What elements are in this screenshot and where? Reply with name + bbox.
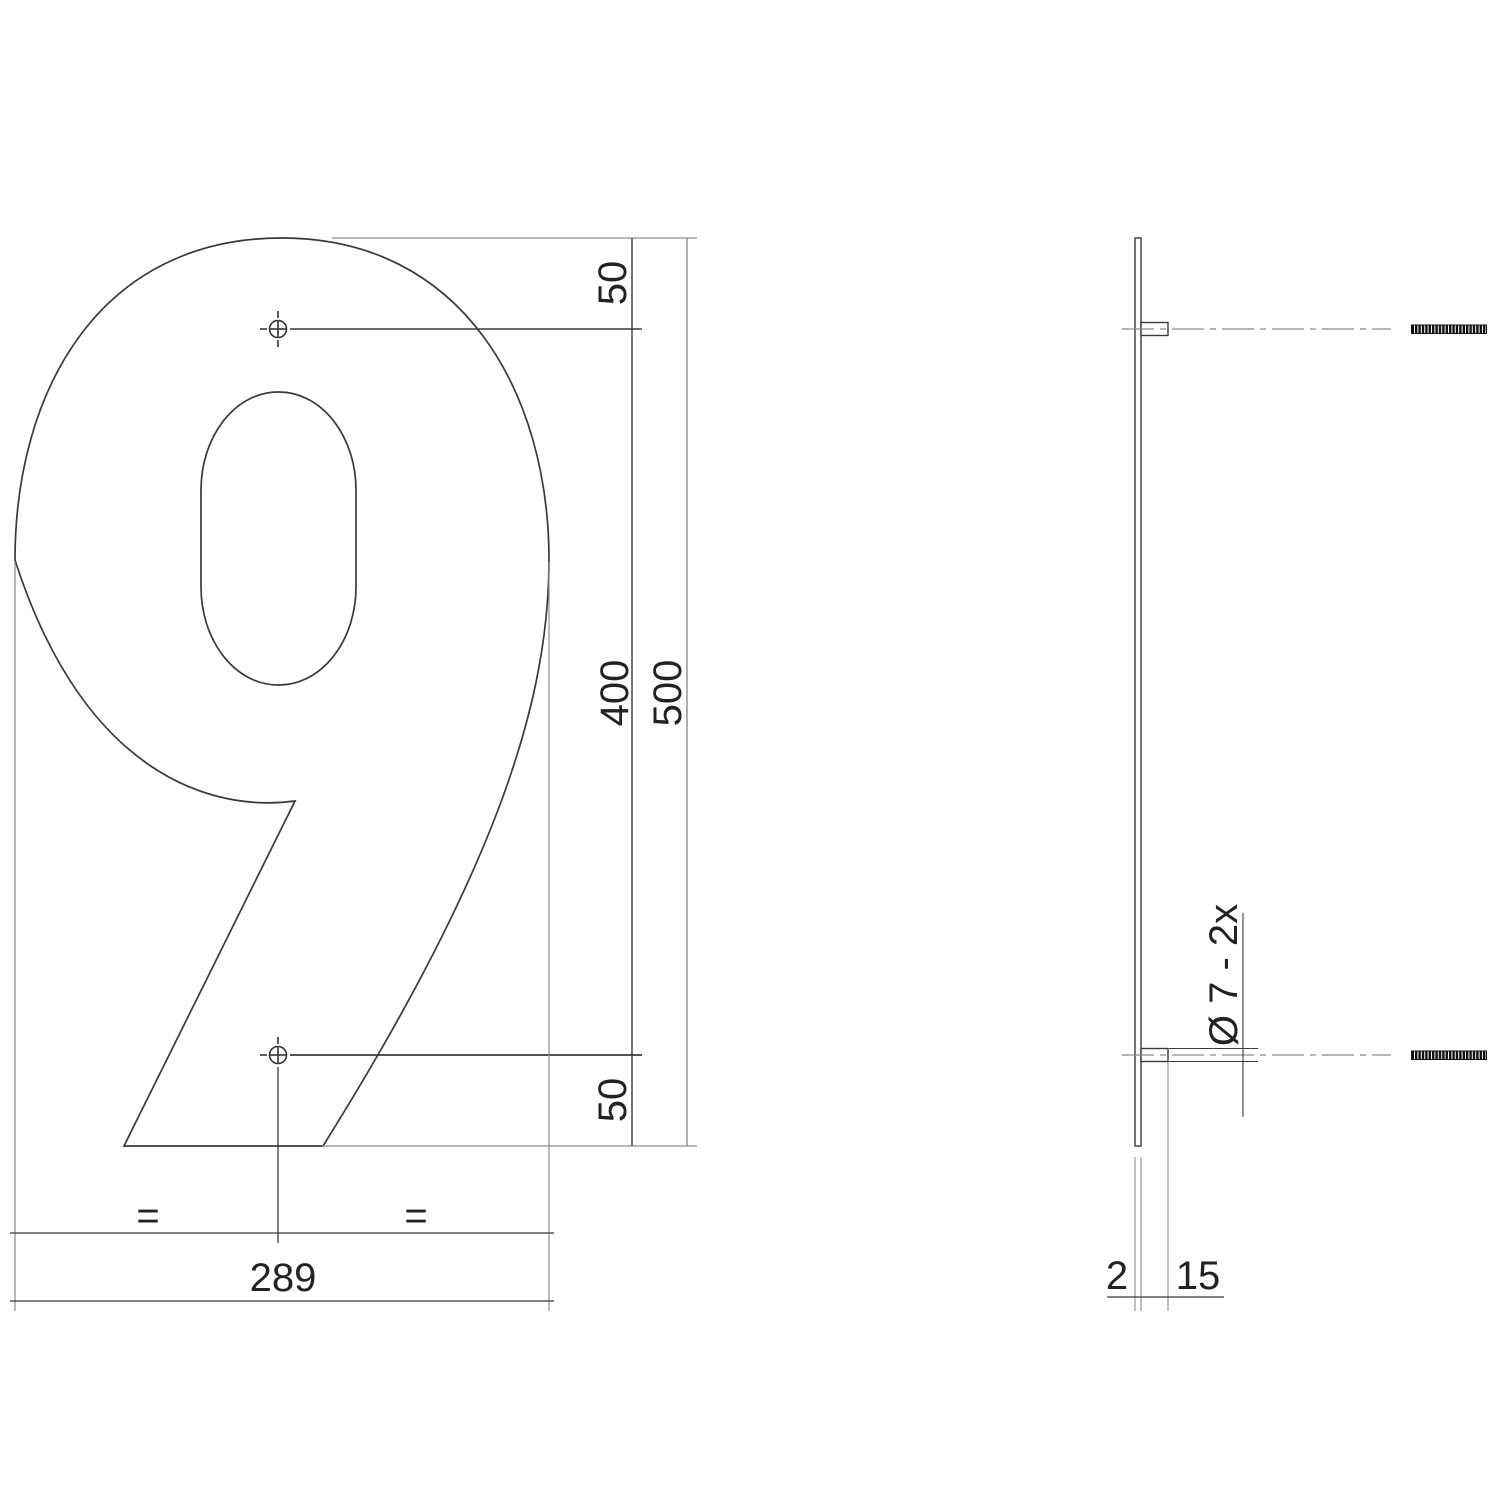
dim-label-bottom-offset: 50 — [591, 1078, 635, 1123]
side-view: Ø 7 - 2x 2 15 — [1106, 238, 1487, 1311]
dim-label-hole-spacing: 400 — [593, 660, 637, 727]
equal-mark-left: = — [136, 1194, 159, 1238]
dim-label-overall-height: 500 — [646, 660, 690, 727]
technical-drawing-canvas: 9 — [0, 0, 1500, 1500]
top-threaded-rod — [1411, 325, 1487, 335]
front-view: 50 400 500 50 = = 289 — [10, 238, 697, 1311]
dim-label-plate-thickness: 2 — [1106, 1254, 1128, 1298]
drawing-svg: 50 400 500 50 = = 289 — [0, 0, 1500, 1500]
bottom-hole-marker — [260, 1037, 287, 1064]
dim-label-stud-length: 15 — [1176, 1254, 1221, 1298]
top-hole-marker — [260, 311, 287, 347]
equal-mark-right: = — [404, 1194, 427, 1238]
plate-side-profile — [1135, 238, 1141, 1146]
dim-label-overall-width: 289 — [250, 1256, 317, 1300]
numeral-9-outline — [15, 238, 549, 1146]
bottom-threaded-rod — [1411, 1051, 1487, 1061]
dim-label-top-offset: 50 — [591, 261, 635, 306]
numeral-9-counter — [201, 392, 356, 685]
dim-label-hole-note: Ø 7 - 2x — [1202, 904, 1246, 1046]
